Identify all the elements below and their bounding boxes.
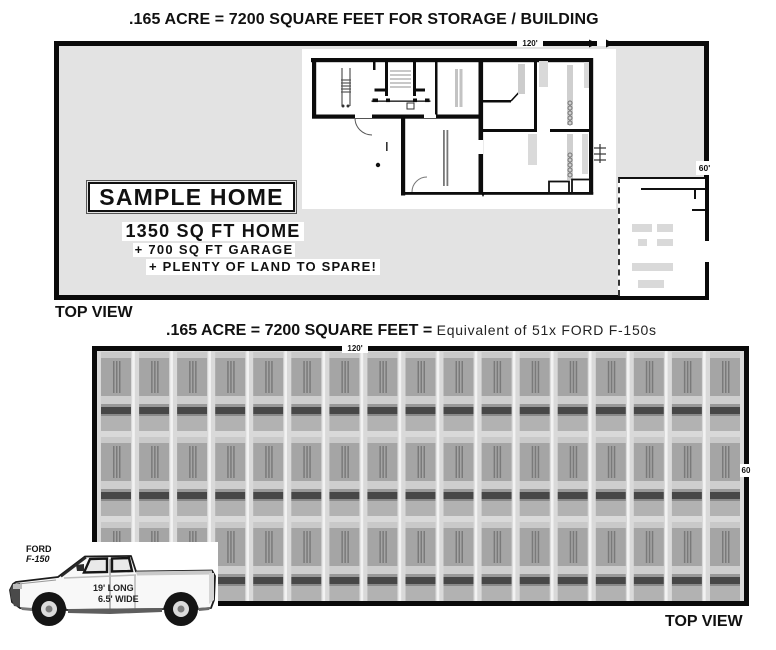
svg-text:19' LONG: 19' LONG [93,583,134,593]
svg-text:6.5' WIDE: 6.5' WIDE [98,594,139,604]
svg-text:F-150: F-150 [26,554,50,564]
svg-text:FORD: FORD [26,544,52,554]
